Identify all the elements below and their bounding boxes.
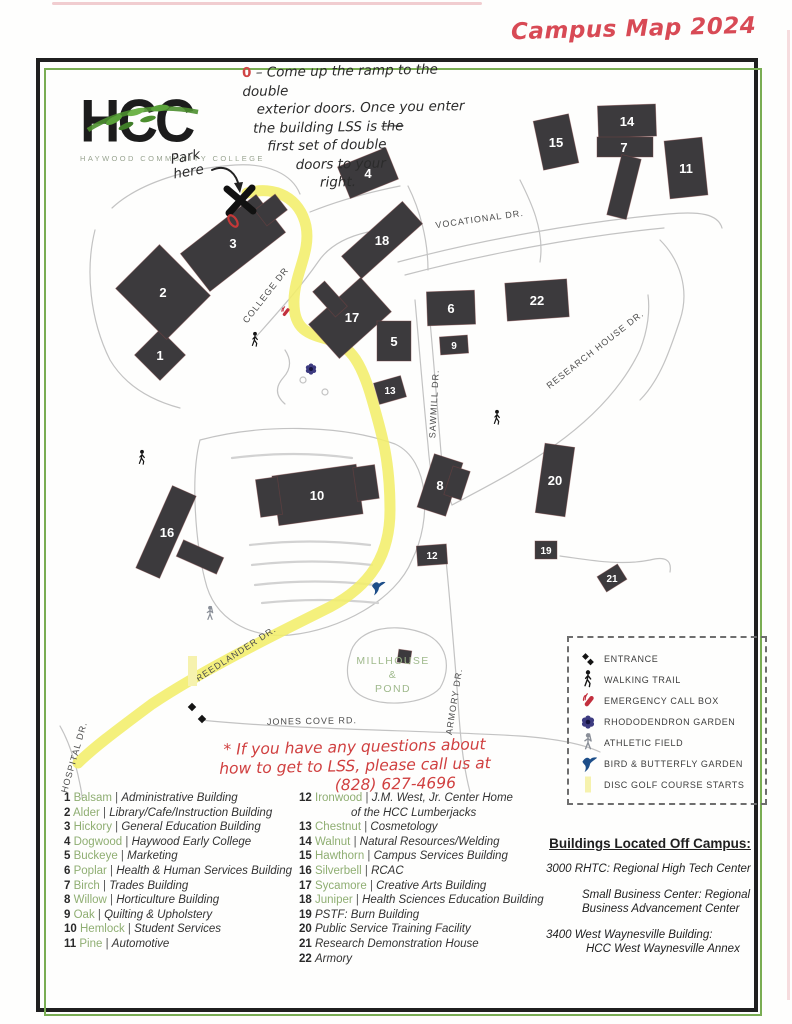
building-10-number: 10	[310, 488, 324, 503]
directory-row: 21 Research Demonstration House	[299, 937, 544, 952]
directory-row: 10 HemlockStudent Services	[64, 922, 292, 937]
directory-row: 6 PoplarHealth & Human Services Building	[64, 864, 292, 879]
directory-row: 15 HawthornCampus Services Building	[299, 849, 544, 864]
hcc-logo: HCC HAYWOOD COMMUNITY COLLEGE	[80, 92, 250, 204]
row-number: 18	[299, 894, 312, 906]
row-tree-name: Willow	[74, 894, 107, 906]
off-campus-entry-line: 3000 RHTC: Regional High Tech Center	[546, 862, 754, 877]
off-campus-entry: 3000 RHTC: Regional High Tech Center	[546, 862, 754, 877]
row-description: Health & Human Services Building	[107, 865, 292, 877]
building-7-stem	[607, 155, 641, 220]
legend-label: WALKING TRAIL	[604, 675, 681, 685]
millhouse-label-line1: MILLHOUSE	[356, 655, 429, 667]
building-16-number: 16	[160, 525, 174, 540]
directory-row: 14 WalnutNatural Resources/Welding	[299, 835, 544, 850]
road-label-research-house: RESEARCH HOUSE DR.	[545, 309, 646, 391]
building-12-number: 12	[426, 551, 438, 562]
note-line: 0 – Come up the ramp to the double	[242, 60, 473, 101]
directory-row: 9 OakQuilting & Upholstery	[64, 908, 292, 923]
rhododendron-garden-icon	[579, 712, 597, 731]
row-tree-name: Hemlock	[80, 923, 125, 935]
row-tree-name: Juniper	[315, 894, 353, 906]
row-number: 21	[299, 938, 312, 950]
row-number: 11	[64, 938, 76, 950]
row-number: 4	[64, 836, 70, 848]
row-description: Cosmetology	[361, 821, 438, 833]
bird-butterfly-garden-icon	[579, 754, 597, 773]
building-14-number: 14	[620, 114, 635, 129]
building-6-number: 6	[447, 301, 454, 316]
row-number: 10	[64, 923, 77, 935]
row-description: Haywood Early College	[122, 836, 251, 848]
off-campus-entry: 3400 West Waynesville Building: HCC West…	[546, 928, 754, 957]
legend-item-emergency-call-box: EMERGENCY CALL BOX	[579, 690, 757, 711]
row-number: 3	[64, 821, 70, 833]
row-number: 17	[299, 880, 312, 892]
row-number: 14	[299, 836, 312, 848]
building-8-number: 8	[436, 478, 443, 493]
legend-item-walking-trail: WALKING TRAIL	[579, 669, 757, 690]
directory-row: 3 HickoryGeneral Education Building	[64, 820, 292, 835]
row-tree-name: Hawthorn	[315, 850, 364, 862]
building-15-number: 15	[549, 135, 563, 150]
road-label-freedlander: FREEDLANDER DR.	[189, 624, 278, 687]
off-campus-entry-line: 3400 West Waynesville Building:	[546, 928, 754, 943]
directory-row: 1 BalsamAdministrative Building	[64, 791, 292, 806]
off-campus-heading: Buildings Located Off Campus:	[546, 836, 754, 851]
row-tree-name: Birch	[74, 880, 100, 892]
row-description: Automotive	[102, 938, 169, 950]
off-campus-entry-line: Business Advancement Center	[582, 902, 754, 917]
legend-label: RHODODENDRON GARDEN	[604, 717, 735, 727]
entrance-icon	[188, 703, 196, 711]
row-description: J.M. West, Jr. Center Home	[362, 792, 513, 804]
map-legend: ENTRANCE WALKING TRAIL EMERGENCY CALL BO…	[567, 636, 767, 805]
row-number: 7	[64, 880, 70, 892]
building-directory-column-1: 1 BalsamAdministrative Building 2 AlderL…	[64, 791, 292, 952]
building-10-wing-right	[353, 465, 380, 502]
building-7-number: 7	[620, 140, 627, 155]
row-description: Library/Cafe/Instruction Building	[100, 807, 272, 819]
hcc-logo-text: HCC	[80, 90, 250, 153]
directory-row: 7 BirchTrades Building	[64, 879, 292, 894]
directory-row: 17 SycamoreCreative Arts Building	[299, 879, 544, 894]
row-description: General Education Building	[112, 821, 261, 833]
row-number: 19	[299, 909, 312, 921]
building-3-number: 3	[229, 236, 236, 251]
road-label-college: COLLEGE DR	[241, 265, 291, 325]
row-number: 16	[299, 865, 312, 877]
row-tree-name: Walnut	[315, 836, 350, 848]
millhouse-label-line2: &	[389, 669, 397, 681]
road-label-armory: ARMORY DR.	[444, 668, 464, 736]
walking-trail-icon	[252, 332, 257, 346]
building-16-arm	[176, 540, 224, 574]
walking-trail-icon	[139, 450, 144, 464]
row-tree-name: Pine	[79, 938, 102, 950]
off-campus-entry: Small Business Center: Regional Business…	[546, 888, 754, 917]
row-tree-name: Balsam	[74, 792, 112, 804]
route-instructions-note: 0 – Come up the ramp to the double exter…	[242, 60, 474, 193]
walking-trail-icon	[579, 670, 597, 689]
legend-item-athletic-field: ATHLETIC FIELD	[579, 732, 757, 753]
row-number: 20	[299, 923, 312, 935]
directory-row: 5 BuckeyeMarketing	[64, 849, 292, 864]
building-2-number: 2	[159, 285, 166, 300]
row-description: Trades Building	[100, 880, 188, 892]
row-description: Student Services	[125, 923, 221, 935]
building-13-number: 13	[384, 386, 396, 397]
directory-row: 8 WillowHorticulture Building	[64, 893, 292, 908]
off-campus-section: Buildings Located Off Campus: 3000 RHTC:…	[546, 836, 754, 957]
building-20-number: 20	[548, 473, 562, 488]
walking-trail-icon	[494, 410, 499, 424]
row-number: 22	[299, 953, 312, 965]
building-17-number: 17	[345, 310, 359, 325]
row-tree-name: Chestnut	[315, 821, 361, 833]
row-description-line2: of the HCC Lumberjacks	[351, 807, 476, 819]
row-description: RCAC	[362, 865, 404, 877]
off-campus-entry-line: Small Business Center: Regional	[582, 888, 754, 903]
legend-item-entrance: ENTRANCE	[579, 648, 757, 669]
building-10-wing-left	[255, 477, 282, 518]
directory-row: 18 JuniperHealth Sciences Education Buil…	[299, 893, 544, 908]
building-18-number: 18	[375, 233, 389, 248]
row-tree-name: Oak	[74, 909, 95, 921]
building-directory-column-2: 12 IronwoodJ.M. West, Jr. Center Home of…	[299, 791, 544, 966]
row-description: Armory	[315, 953, 352, 965]
row-number: 2	[64, 807, 70, 819]
emergency-call-box-icon	[579, 691, 597, 710]
row-number: 13	[299, 821, 312, 833]
row-description: Research Demonstration House	[315, 938, 479, 950]
millhouse-label-line3: POND	[375, 683, 411, 695]
row-description: Public Service Training Facility	[315, 923, 471, 935]
hcc-logo-subtitle: HAYWOOD COMMUNITY COLLEGE	[80, 154, 250, 163]
building-9-number: 9	[451, 341, 457, 352]
park-here-note: Park here	[170, 148, 205, 183]
road-label-jones-cove: JONES COVE RD.	[267, 715, 357, 727]
off-campus-entry-line: HCC West Waynesville Annex	[546, 942, 754, 957]
building-11-number: 11	[679, 161, 693, 176]
athletic-field-icon	[579, 733, 597, 752]
row-tree-name: Silverbell	[315, 865, 362, 877]
athletic-field-icon	[207, 606, 212, 620]
row-number: 1	[64, 792, 70, 804]
millhouse-pond-label: MILLHOUSE & POND	[356, 655, 429, 695]
row-number: 8	[64, 894, 70, 906]
row-description: Health Sciences Education Building	[353, 894, 544, 906]
questions-note: * If you have any questions about how to…	[159, 734, 550, 799]
disc-golf-icon	[188, 656, 197, 686]
row-description: Horticulture Building	[107, 894, 219, 906]
legend-label: BIRD & BUTTERFLY GARDEN	[604, 759, 743, 769]
row-description: Creative Arts Building	[367, 880, 487, 892]
row-number: 5	[64, 850, 70, 862]
directory-row: 2 AlderLibrary/Cafe/Instruction Building	[64, 806, 292, 821]
legend-item-disc-golf: DISC GOLF COURSE STARTS	[579, 774, 757, 795]
entrance-icon	[579, 649, 597, 668]
directory-row: 13 ChestnutCosmetology	[299, 820, 544, 835]
directory-row: 22 Armory	[299, 952, 544, 967]
building-21-number: 21	[606, 574, 618, 585]
building-1-number: 1	[156, 348, 163, 363]
legend-label: ENTRANCE	[604, 654, 658, 664]
directory-row: 20 Public Service Training Facility	[299, 922, 544, 937]
legend-item-bird-butterfly-garden: BIRD & BUTTERFLY GARDEN	[579, 753, 757, 774]
legend-item-rhododendron-garden: RHODODENDRON GARDEN	[579, 711, 757, 732]
directory-row-continuation: of the HCC Lumberjacks	[299, 806, 544, 821]
row-tree-name: Sycamore	[315, 880, 367, 892]
door-marker-label: 0	[242, 65, 252, 81]
row-tree-name: Ironwood	[315, 792, 362, 804]
building-5-number: 5	[390, 334, 397, 349]
directory-row: 4 DogwoodHaywood Early College	[64, 835, 292, 850]
disc-golf-icon	[579, 775, 597, 794]
directory-row: 12 IronwoodJ.M. West, Jr. Center Home	[299, 791, 544, 806]
row-description: Quilting & Upholstery	[95, 909, 212, 921]
struck-word: the	[381, 118, 403, 134]
legend-label: EMERGENCY CALL BOX	[604, 696, 719, 706]
row-number: 6	[64, 865, 70, 877]
row-description: PSTF: Burn Building	[315, 909, 419, 921]
row-description: Marketing	[118, 850, 178, 862]
row-tree-name: Hickory	[74, 821, 112, 833]
row-description: Natural Resources/Welding	[350, 836, 499, 848]
rhododendron-garden-icon	[306, 363, 316, 374]
row-tree-name: Alder	[73, 807, 100, 819]
directory-row: 19 PSTF: Burn Building	[299, 908, 544, 923]
directory-row: 11 PineAutomotive	[64, 937, 292, 952]
building-19-number: 19	[540, 546, 552, 557]
entrance-icon	[198, 715, 206, 723]
bird-butterfly-garden-icon	[372, 582, 386, 595]
row-tree-name: Poplar	[74, 865, 107, 877]
row-number: 12	[299, 792, 312, 804]
directory-row: 16 SilverbellRCAC	[299, 864, 544, 879]
legend-label: DISC GOLF COURSE STARTS	[604, 780, 745, 790]
row-description: Administrative Building	[112, 792, 238, 804]
row-tree-name: Buckeye	[74, 850, 118, 862]
row-tree-name: Dogwood	[74, 836, 123, 848]
legend-label: ATHLETIC FIELD	[604, 738, 683, 748]
row-number: 9	[64, 909, 70, 921]
campus-map-page: Campus Map 2024	[0, 0, 792, 1024]
row-number: 15	[299, 850, 312, 862]
road-label-vocational: VOCATIONAL DR.	[435, 208, 525, 230]
building-22-number: 22	[530, 293, 544, 308]
row-description: Campus Services Building	[364, 850, 508, 862]
